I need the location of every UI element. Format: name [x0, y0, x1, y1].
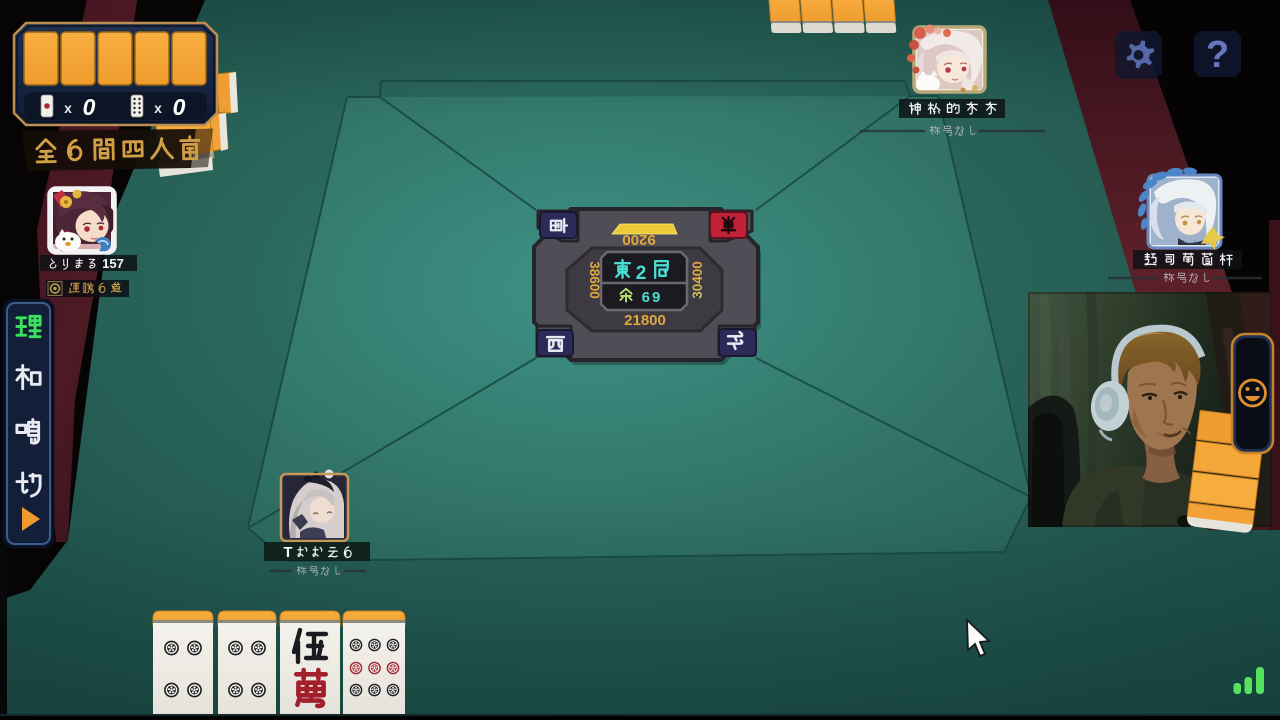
- svg-text:9200: 9200: [622, 231, 655, 248]
- svg-text:0: 0: [83, 94, 96, 120]
- svg-text:x: x: [154, 100, 162, 116]
- svg-text:x: x: [64, 100, 72, 116]
- svg-text:T: T: [283, 544, 292, 561]
- svg-text:30400: 30400: [690, 261, 705, 299]
- svg-text:157: 157: [102, 256, 124, 271]
- svg-text:21800: 21800: [624, 312, 666, 329]
- svg-text:69: 69: [642, 289, 663, 306]
- svg-text:0: 0: [173, 94, 186, 120]
- svg-text:?: ?: [1206, 34, 1229, 76]
- svg-text:2: 2: [636, 263, 647, 284]
